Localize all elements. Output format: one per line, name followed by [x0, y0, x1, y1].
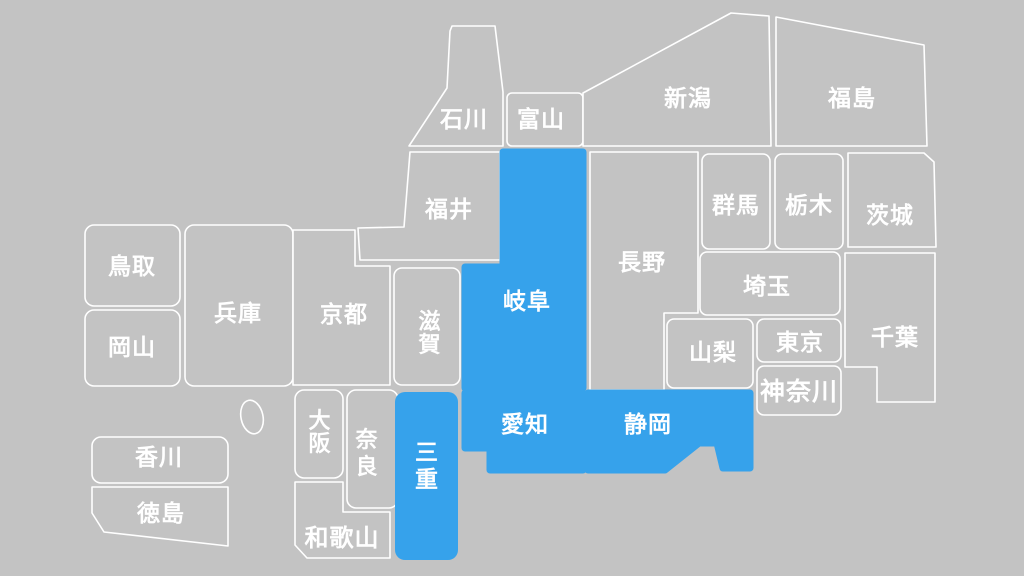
prefecture-gifu-label: 岐阜 — [503, 288, 551, 314]
prefecture-okayama-label: 岡山 — [108, 334, 156, 360]
prefecture-aichi-label: 愛知 — [501, 411, 549, 437]
prefecture-nara-label-char1: 奈 — [354, 427, 378, 452]
prefecture-fukushima-label: 福島 — [827, 85, 876, 111]
prefecture-nagano-label: 長野 — [618, 249, 666, 275]
prefecture-kyoto-label: 京都 — [320, 301, 368, 327]
prefecture-kanagawa-label: 神奈川 — [760, 378, 838, 406]
prefecture-tokyo-label: 東京 — [776, 329, 824, 355]
map-canvas: 石川 富山 新潟 福島 福井 群馬 栃木 茨城 長野 埼玉 山梨 東京 千葉 神… — [0, 0, 1024, 576]
prefecture-ibaraki-label: 茨城 — [866, 202, 914, 228]
prefecture-saitama-label: 埼玉 — [743, 273, 791, 299]
prefecture-mie-label-char1: 三 — [415, 439, 439, 465]
prefecture-tokushima-label: 徳島 — [136, 500, 185, 526]
prefecture-gunma-label: 群馬 — [711, 192, 760, 218]
prefecture-tottori-label: 鳥取 — [108, 253, 156, 279]
prefecture-fukui-label: 福井 — [424, 196, 473, 222]
prefecture-niigata-label: 新潟 — [664, 85, 712, 111]
prefecture-chiba-label: 千葉 — [871, 324, 919, 350]
prefecture-mie-label: 三 重 — [415, 439, 439, 492]
japan-tile-map: 石川 富山 新潟 福島 福井 群馬 栃木 茨城 長野 埼玉 山梨 東京 千葉 神… — [0, 0, 1024, 576]
prefecture-osaka-label-char2: 阪 — [308, 431, 331, 456]
prefecture-ishikawa-label: 石川 — [439, 106, 488, 132]
prefecture-hyogo-label: 兵庫 — [214, 300, 262, 326]
prefecture-shiga-label-char2: 賀 — [417, 332, 441, 357]
prefecture-wakayama-label: 和歌山 — [305, 525, 380, 552]
prefecture-osaka-label-char1: 大 — [308, 408, 331, 433]
prefecture-osaka-label: 大 阪 — [308, 408, 331, 456]
prefecture-nara-label-char2: 良 — [355, 454, 378, 479]
prefecture-toyama-label: 富山 — [517, 106, 565, 132]
prefecture-mie-label-char2: 重 — [415, 466, 439, 492]
prefecture-yamanashi-label: 山梨 — [689, 339, 737, 365]
prefecture-tochigi-label: 栃木 — [785, 192, 833, 218]
prefecture-shizuoka-label: 静岡 — [624, 411, 672, 437]
prefecture-shiga-label: 滋 賀 — [417, 309, 441, 357]
prefecture-ibaraki-shape[interactable] — [848, 153, 936, 247]
prefecture-shiga-label-char1: 滋 — [418, 309, 441, 334]
prefecture-kagawa-label: 香川 — [135, 444, 183, 470]
